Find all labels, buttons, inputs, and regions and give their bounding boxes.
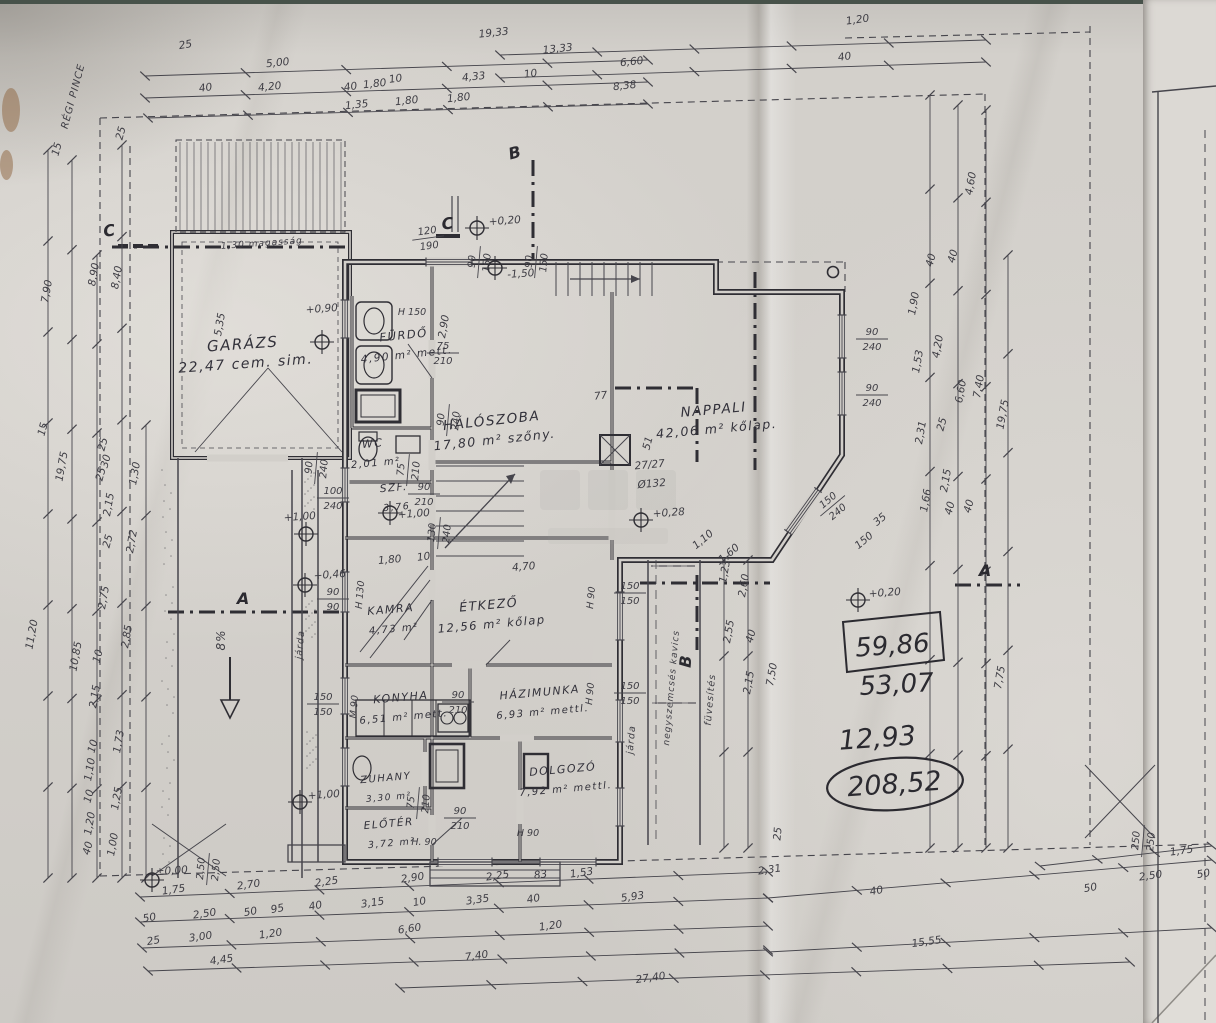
fraction-denominator: 240 [323, 501, 342, 512]
dim-label: 77 [593, 389, 608, 402]
dim-label: 1,80 [394, 94, 419, 108]
fraction-numerator: 90 [866, 383, 879, 394]
handwritten-value: 53,07 [859, 668, 935, 702]
fraction-denominator: 210 [450, 821, 469, 832]
dim-label: 10 [388, 72, 403, 86]
annotation-label: negyszemcsés kavics [661, 630, 682, 746]
dim-label: 25 [935, 416, 950, 432]
dim-label: 3,00 [188, 929, 213, 944]
fraction-numerator: 250 [1130, 831, 1143, 851]
dim-label: 11,20 [24, 618, 41, 650]
dim-label: 40 [526, 892, 542, 906]
door-window-size: 2,502,50 [195, 852, 224, 886]
dim-label: 1,90 [906, 291, 922, 316]
dim-label: 5,35 [212, 312, 228, 337]
dim-label: 15,55 [911, 934, 943, 950]
annotation-label: járda [625, 725, 639, 757]
dim-label: 51 [641, 435, 656, 451]
dim-label: 25 [771, 826, 784, 841]
fraction-numerator: 90 [452, 690, 465, 701]
dim-label: 1,35 [344, 98, 369, 112]
annotation-label: járda [294, 630, 308, 662]
annotation-label: füvesítés [703, 673, 718, 726]
fraction-denominator: 2,50 [210, 858, 223, 881]
fraction-numerator: 90 [454, 806, 467, 817]
dim-label: 5,93 [620, 889, 645, 904]
fraction-denominator: 190 [419, 240, 439, 254]
parapet-height-label: H 90 [585, 586, 598, 609]
section-marker-label: C [102, 220, 117, 240]
level-value: -1,50 [507, 267, 535, 281]
dim-label: 7,50 [764, 662, 780, 687]
dim-label: 40 [308, 899, 324, 913]
dim-label: 1,10 [82, 757, 98, 782]
dim-label: 1,20 [258, 926, 283, 941]
fraction-numerator: 150 [313, 692, 332, 703]
dim-label: 83 [533, 868, 548, 882]
dim-label: 8,40 [109, 265, 125, 290]
dim-label: 95 [270, 902, 286, 916]
door-window-size: 120190 [411, 224, 446, 254]
dim-label: 2,15 [87, 684, 103, 709]
room-area: 12,56 m² kőlap [437, 612, 546, 635]
dim-label: 4,20 [930, 334, 946, 359]
annotation-label: 1,30 magasság [221, 236, 304, 252]
fraction-denominator: 250 [1145, 832, 1158, 852]
dim-label: 25 [178, 38, 194, 52]
door-window-size: 90240 [856, 383, 888, 409]
room-name: DOLGOZÓ [529, 760, 597, 779]
fraction-numerator: 100 [323, 486, 342, 497]
dim-label: 50 [1083, 881, 1099, 895]
dim-label: 2,55 [721, 619, 737, 644]
dim-label: 7,75 [992, 665, 1008, 690]
door-window-size: 150150 [307, 692, 339, 718]
dim-label: 1,80 [362, 77, 387, 91]
dim-label: 5,00 [265, 56, 290, 70]
annotation-label: RÉGI PINCE [58, 62, 88, 130]
dim-label: 40 [81, 840, 96, 856]
handwritten-value: 208,52 [846, 766, 942, 804]
parapet-height-label: H 130 [354, 580, 367, 609]
room-area: 2,01 m² [351, 456, 401, 471]
fraction-numerator: 130 [426, 523, 439, 543]
level-value: ±0,00 [155, 864, 188, 878]
handwritten-value: 59,86 [854, 628, 930, 663]
fraction-numerator: 90 [466, 255, 478, 269]
fraction-numerator: 2,50 [195, 857, 208, 880]
dim-label: 1,53 [910, 349, 926, 374]
level-mark: +1,00 [283, 510, 318, 546]
room-name: ÉTKEZŐ [459, 594, 519, 614]
fraction-denominator: 240 [441, 524, 454, 544]
fraction-numerator: 90 [418, 482, 431, 493]
dim-label: 19,75 [54, 450, 71, 482]
fraction-denominator: 90 [327, 602, 340, 613]
dim-label: 2,75 [96, 585, 112, 610]
room-area: 6,51 m² mett. [359, 708, 448, 727]
parapet-height-label: H 90 [517, 828, 539, 839]
level-mark: +1,00 [288, 788, 341, 814]
dim-label: 1,20 [845, 12, 870, 27]
level-mark: +0,90 [305, 302, 338, 354]
dim-label: 27,40 [635, 970, 667, 986]
room-area: 22,47 cem. sim. [178, 351, 314, 376]
dim-label: 40 [744, 628, 759, 644]
fraction-denominator: 150 [313, 707, 332, 718]
dim-label: 2,90 [436, 314, 452, 339]
dim-label: 40 [343, 80, 358, 94]
dim-label: 8,90 [86, 262, 102, 287]
dim-label: 3,15 [360, 895, 385, 910]
dim-label: 2,90 [400, 870, 425, 885]
dim-label: 6,60 [953, 379, 969, 404]
dim-label: 40 [198, 81, 213, 95]
dim-label: 10 [91, 648, 106, 664]
dim-label: 150 [853, 529, 876, 551]
fraction-numerator: 120 [417, 225, 437, 239]
fraction-denominator: 150 [620, 596, 639, 607]
dim-label: 4,20 [257, 80, 282, 94]
dim-label: 7,90 [39, 279, 55, 304]
dim-label: 1,73 [111, 729, 127, 754]
fraction-denominator: 150 [481, 253, 494, 273]
fraction-denominator: 150 [538, 253, 551, 273]
fraction-numerator: 150 [620, 581, 639, 592]
annotation-label: 8% [214, 629, 228, 650]
dim-label: 40 [837, 50, 852, 64]
dim-label: 2,85 [119, 624, 135, 649]
room-name: SZF. [379, 481, 408, 495]
dim-label: 40 [943, 500, 958, 516]
room-area: 7,92 m² mettl. [519, 780, 613, 799]
section-marker-label: B [506, 142, 523, 164]
level-value: +0,28 [652, 506, 685, 520]
room-area: 3,72 m² [368, 836, 417, 851]
dim-label: 1,20 [82, 811, 98, 836]
dim-label: 2,72 [124, 529, 140, 554]
level-value: +0,46 [313, 568, 346, 582]
room-name: NAPPALI [680, 399, 747, 421]
dim-label: 1,20 [538, 918, 563, 933]
section-marker-label: C [441, 214, 455, 234]
dim-label: 4,45 [209, 952, 234, 967]
dim-label: 2,50 [1138, 868, 1163, 883]
dim-label: 50 [243, 905, 259, 919]
fraction-denominator: 210 [410, 461, 423, 481]
dim-label: 8,38 [612, 79, 637, 93]
room-name: KONYHA [373, 689, 429, 707]
door-window-size: 90210 [444, 806, 476, 832]
level-value: +0,20 [868, 586, 901, 600]
room-labels-layer: GARÁZS22,47 cem. sim.FÜRDŐ4,90 m² mett.W… [178, 324, 778, 852]
dim-label: 10 [523, 67, 538, 81]
fraction-denominator: 240 [862, 342, 881, 353]
dim-label: 50 [1196, 867, 1212, 881]
level-value: +1,00 [397, 507, 430, 521]
dim-label: 2,25 [485, 868, 510, 883]
dim-label: 40 [924, 252, 939, 268]
dim-label: 25 [101, 533, 116, 549]
level-mark: +0,20 [465, 214, 522, 240]
room-area: 6,93 m² mettl. [496, 703, 590, 722]
dim-label: 10 [412, 895, 428, 909]
dim-label: 15 [50, 141, 65, 157]
dim-label: 25 [96, 436, 111, 452]
dim-label: 1,53 [569, 865, 594, 880]
level-value: +1,00 [307, 788, 340, 802]
dim-label: 25 [146, 934, 162, 948]
dim-label: 2,70 [236, 877, 261, 892]
fraction-numerator: 90 [303, 461, 315, 475]
dim-label: 1,80 [378, 553, 403, 567]
level-value: +1,00 [283, 510, 316, 524]
parapet-height-label: H 150 [398, 307, 426, 318]
dim-label: 19,75 [995, 398, 1012, 430]
dim-label: 25 [114, 125, 129, 141]
dim-label: 7,40 [464, 948, 489, 963]
handwritten-layer: 59,8653,0712,93208,52 [825, 612, 964, 815]
section-marker-label: A [977, 561, 991, 580]
dim-label: 2,60 [736, 573, 752, 598]
dim-label: 10 [82, 788, 97, 804]
room-name: KAMRA [367, 601, 415, 618]
floorplan-drawing: 255,004,2040401,351,80101,801,804,331019… [0, 0, 1216, 1023]
dim-label: 3,35 [465, 892, 490, 907]
dim-label: 4,70 [512, 560, 537, 574]
fraction-numerator: 150 [620, 681, 639, 692]
dim-label: 19,33 [478, 25, 509, 40]
fraction-numerator: 90 [866, 327, 879, 338]
dim-label: 1,80 [446, 91, 471, 105]
section-marker-label: A [235, 589, 249, 608]
dim-label: 35 [871, 511, 889, 529]
room-area: 42,06 m² kőlap. [656, 416, 778, 442]
dim-label: 6,60 [397, 921, 422, 936]
dim-label: 10 [416, 550, 431, 564]
fraction-denominator: 240 [318, 459, 331, 479]
dim-label: 1,10 [690, 527, 716, 551]
fraction-denominator: 240 [862, 398, 881, 409]
dim-label: 1,66 [918, 488, 934, 513]
dim-label: 1,75 [1169, 843, 1194, 858]
fraction-denominator: 150 [620, 696, 639, 707]
dim-label: 13,33 [542, 41, 573, 56]
dim-label: 2,15 [741, 670, 757, 695]
room-name: ZUHANY [359, 771, 412, 787]
fraction-numerator: 90 [327, 587, 340, 598]
room-name: ELŐTÉR [363, 814, 414, 832]
dim-label: 50 [142, 911, 158, 925]
room-name: HÁZIMUNKA [499, 683, 580, 703]
room-area: 4,73 m² [369, 622, 419, 637]
door-window-size: 90240 [856, 327, 888, 353]
room-name: FÜRDŐ [379, 324, 429, 345]
dim-label: 2,25 [314, 874, 339, 889]
dim-label: 4,33 [461, 70, 486, 84]
dim-label: 6,60 [619, 55, 644, 69]
level-mark: +0,20 [846, 586, 902, 612]
dim-label: 2,31 [913, 420, 929, 445]
dim-label: 40 [962, 498, 977, 514]
photo-of-floorplan: 255,004,2040401,351,80101,801,804,331019… [0, 0, 1216, 1023]
level-value: +0,20 [488, 214, 521, 228]
dim-label: 10,85 [68, 640, 85, 672]
handwritten-value: 12,93 [838, 720, 917, 756]
fraction-denominator: 210 [420, 794, 433, 814]
dim-label: 30 [99, 453, 114, 469]
parapet-height-label: H 90 [584, 682, 597, 705]
dim-label: 40 [869, 884, 885, 898]
dim-label: 1,25 [109, 786, 125, 811]
room-name: WC [361, 436, 384, 451]
dim-label: 4,60 [963, 171, 979, 196]
level-value: +0,90 [305, 302, 338, 316]
dim-label: 2,15 [101, 492, 117, 517]
dim-label: 10 [86, 738, 101, 754]
dim-label: 2,31 [757, 862, 782, 877]
dim-label: 1,00 [105, 832, 121, 857]
dim-label: 2,15 [938, 468, 954, 493]
fraction-denominator: 210 [448, 705, 467, 716]
